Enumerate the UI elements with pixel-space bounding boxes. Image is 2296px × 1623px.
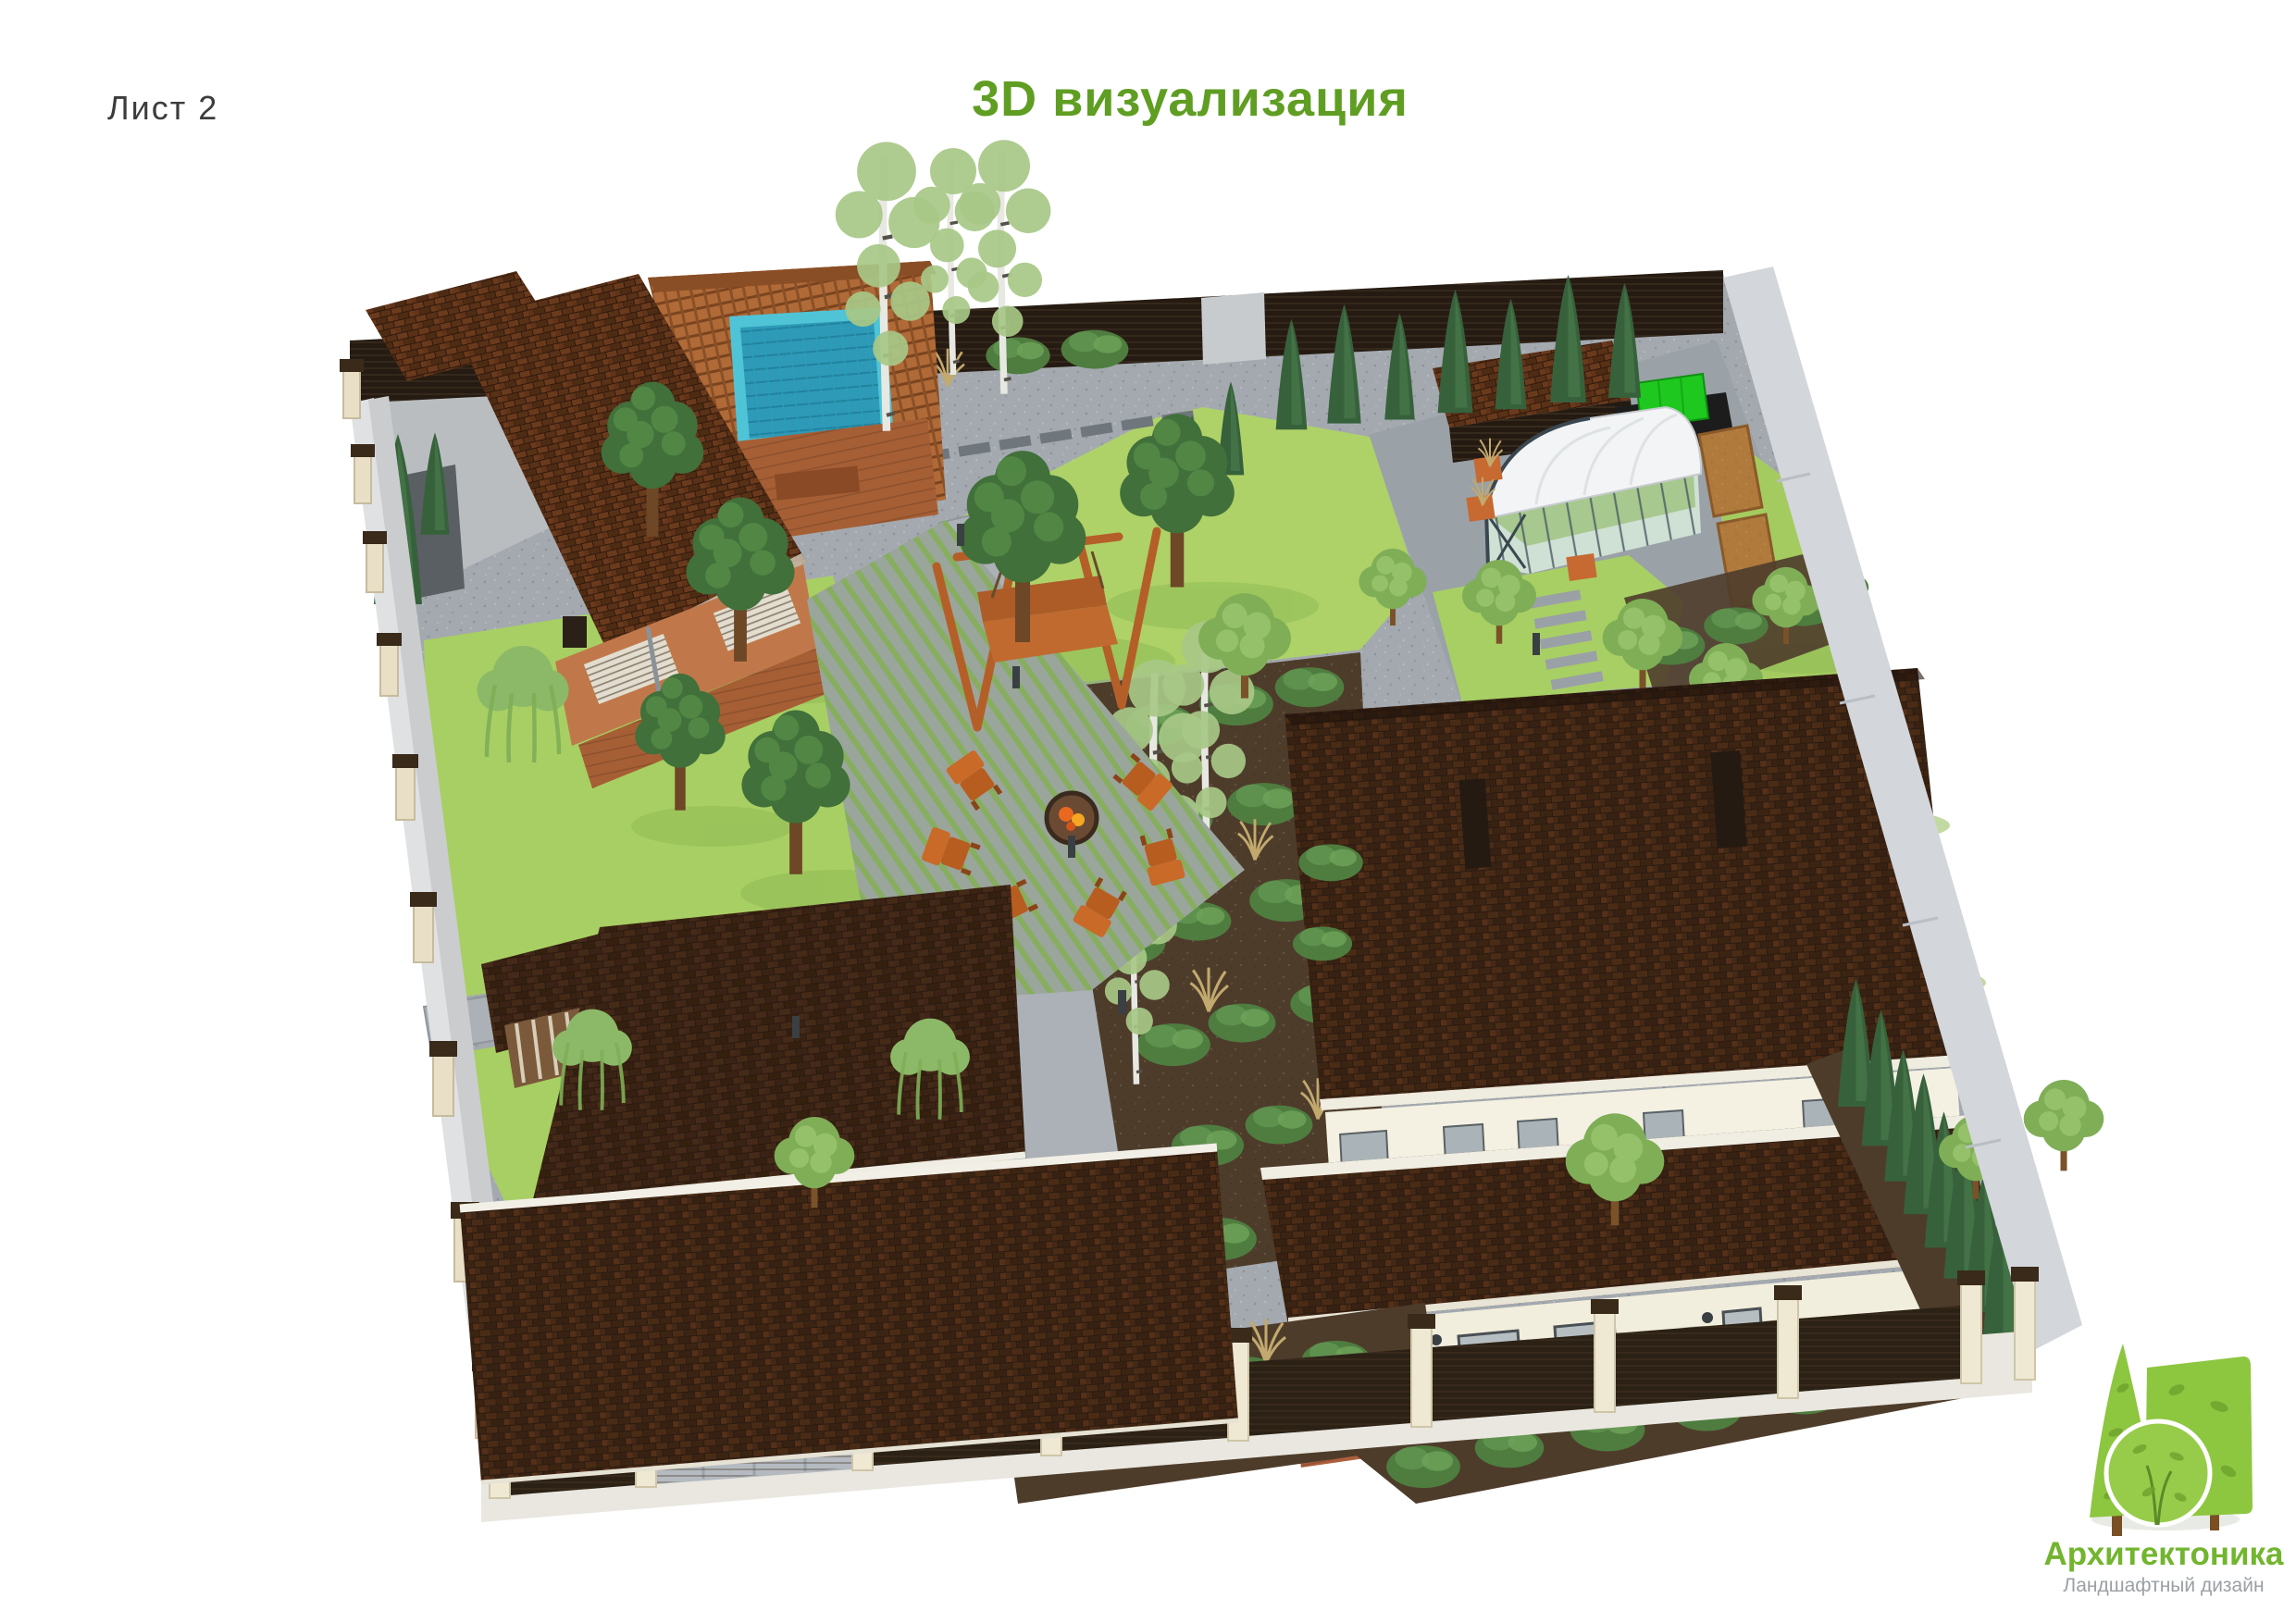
logo-tagline: Ландшафтный дизайн: [2063, 1575, 2264, 1597]
logo-graphic: [2090, 1344, 2253, 1536]
banya-door: [563, 616, 587, 648]
deciduous-tree: [2024, 1080, 2104, 1171]
logo-company-name: Архитектоника: [2044, 1536, 2284, 1573]
site-plan-3d-render: [0, 0, 2296, 1623]
wall-lamp: [1702, 1312, 1713, 1323]
logo-round-bush: [2106, 1421, 2210, 1525]
presentation-sheet: Лист 2 3D визуализация: [0, 0, 2296, 1623]
back-gate: [1201, 292, 1266, 365]
